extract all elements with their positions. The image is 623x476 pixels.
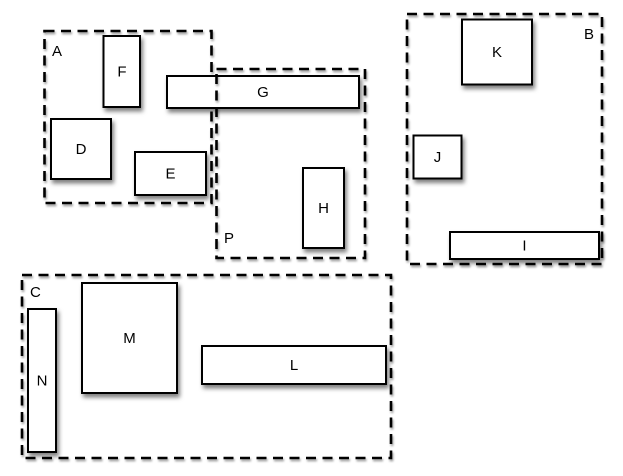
- box-f: F: [104, 36, 141, 107]
- container-c-label: C: [30, 284, 41, 301]
- box-j: J: [414, 136, 462, 179]
- box-k-label: K: [492, 44, 502, 61]
- box-i-label: I: [522, 238, 526, 255]
- diagram-canvas: D E F G H I J K: [0, 0, 623, 476]
- container-p-label: P: [224, 230, 234, 247]
- box-i: I: [450, 232, 599, 259]
- box-m: M: [82, 283, 177, 393]
- box-g-label: G: [257, 84, 269, 101]
- box-g: G: [167, 76, 359, 108]
- container-a-label: A: [52, 43, 62, 60]
- box-f-label: F: [117, 64, 126, 81]
- box-n: N: [28, 309, 56, 452]
- box-e: E: [135, 152, 206, 195]
- box-k: K: [462, 20, 532, 85]
- container-b-label: B: [584, 26, 594, 43]
- box-e-label: E: [165, 166, 175, 183]
- box-h: H: [303, 168, 344, 248]
- box-h-label: H: [318, 200, 329, 217]
- box-m-label: M: [123, 330, 136, 347]
- box-d: D: [51, 119, 111, 179]
- box-l: L: [202, 346, 386, 384]
- box-l-label: L: [290, 357, 298, 374]
- box-j-label: J: [434, 149, 442, 166]
- box-d-label: D: [76, 141, 87, 158]
- diagram-svg: D E F G H I J K: [0, 0, 623, 476]
- box-n-label: N: [37, 373, 48, 390]
